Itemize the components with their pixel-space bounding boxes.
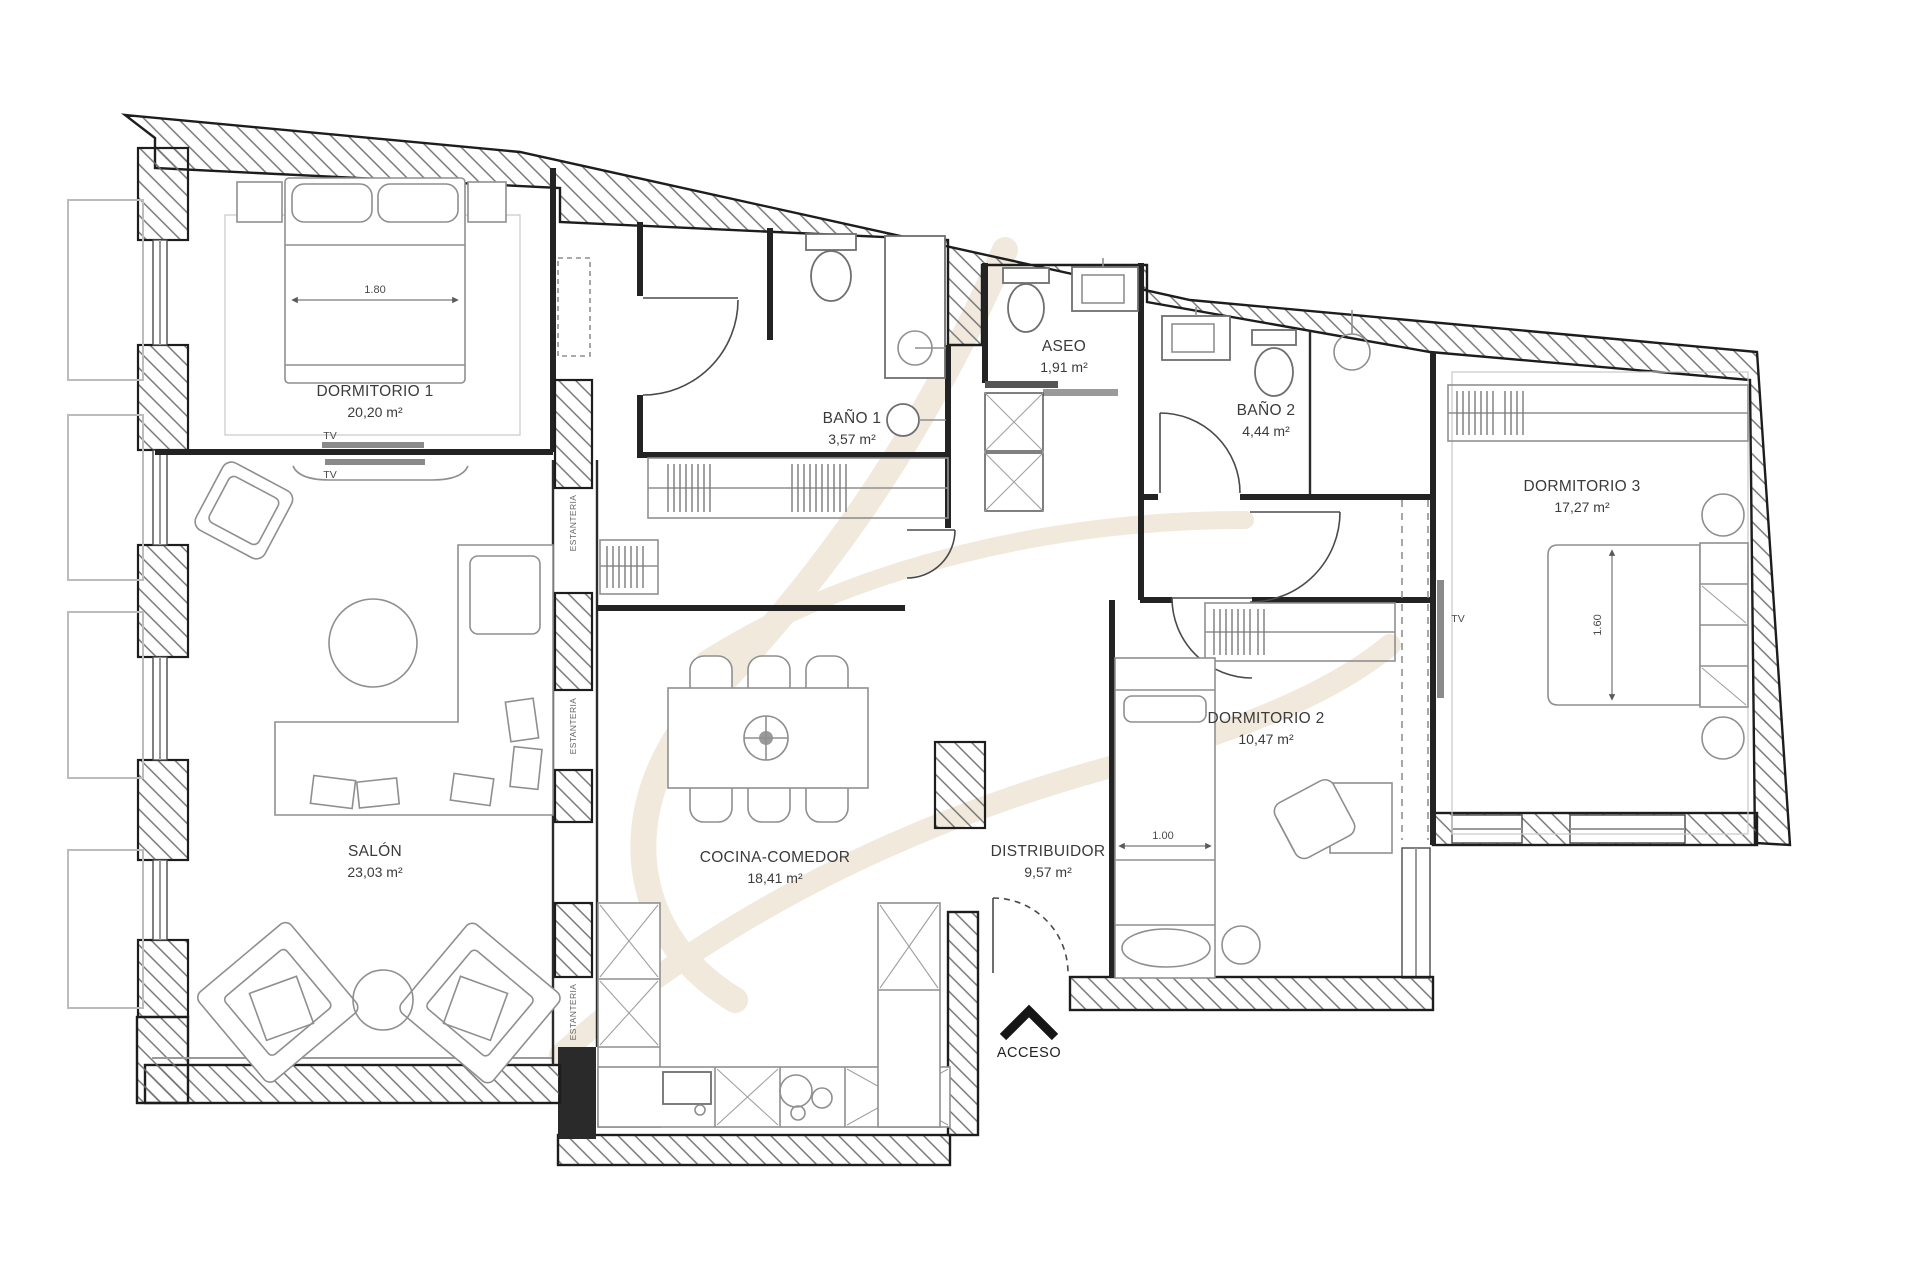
floor-plan-canvas: DORMITORIO 1 20,20 m² SALÓN 23,03 m² BAÑ…: [0, 0, 1920, 1280]
room-area-aseo: 1,91 m²: [1040, 359, 1088, 375]
kitchen-sink: [663, 1072, 711, 1104]
shelf-label-2: ESTANTERIA: [568, 698, 578, 755]
wall-pier-left-2: [138, 345, 188, 450]
tv-label-1: TV: [323, 430, 336, 442]
room-label-bano-1: BAÑO 1: [823, 410, 882, 427]
wall-corner-block: [137, 1017, 188, 1103]
tv-unit-dorm1: [322, 442, 424, 448]
dim-bed1: 1.80: [364, 284, 385, 296]
room-label-bano-2: BAÑO 2: [1237, 402, 1296, 419]
entrance-label: ACCESO: [997, 1045, 1061, 1061]
floor-plan-page: DORMITORIO 1 20,20 m² SALÓN 23,03 m² BAÑ…: [0, 0, 1920, 1280]
wall-pier-entrance: [948, 912, 978, 1135]
wall-connector: [558, 1047, 596, 1139]
room-area-cocina: 18,41 m²: [747, 870, 803, 886]
room-label-aseo: ASEO: [1042, 338, 1086, 355]
room-area-dormitorio-2: 10,47 m²: [1238, 731, 1294, 747]
sliding-door-leaf-2: [1043, 389, 1118, 396]
nightstand: [237, 182, 282, 222]
room-area-salon: 23,03 m²: [347, 864, 403, 880]
hanging-clothes-icon: [607, 546, 643, 588]
room-area-dormitorio-3: 17,27 m²: [1554, 499, 1610, 515]
pier-strip-4: [555, 903, 592, 977]
room-label-dormitorio-3: DORMITORIO 3: [1524, 478, 1641, 495]
nightstand: [468, 182, 506, 222]
tv-label-3: TV: [1451, 613, 1464, 625]
sink-icon: [887, 404, 919, 436]
tv-unit-dorm3: [1437, 580, 1444, 698]
toilet-tank: [1003, 268, 1049, 283]
pier-distribuidor: [935, 742, 985, 828]
room-label-dormitorio-2: DORMITORIO 2: [1208, 710, 1325, 727]
tv-label-2: TV: [323, 469, 336, 481]
pier-strip-3: [555, 770, 592, 822]
toilet-tank: [1252, 330, 1296, 345]
shower-tray: [885, 236, 945, 378]
pier-strip-1: [555, 380, 592, 488]
wall-band-dorm2-bottom: [1070, 977, 1433, 1010]
double-bed: [1548, 545, 1700, 705]
wall-pier-left-3: [138, 545, 188, 657]
room-area-bano-1: 3,57 m²: [828, 431, 876, 447]
room-area-dormitorio-1: 20,20 m²: [347, 404, 403, 420]
double-bed: [285, 178, 465, 383]
dim-bed3: 1.60: [1592, 614, 1604, 635]
wall-pier-left-5: [138, 940, 188, 1017]
room-label-cocina: COCINA-COMEDOR: [700, 849, 851, 866]
toilet-tank: [806, 234, 856, 250]
room-area-distribuidor: 9,57 m²: [1024, 864, 1072, 880]
room-label-dormitorio-1: DORMITORIO 1: [317, 383, 434, 400]
toilet-bowl: [1008, 284, 1044, 332]
wall-pier-left-1: [138, 148, 188, 240]
toilet-bowl: [1255, 348, 1293, 396]
shelf-label-3: ESTANTERIA: [568, 984, 578, 1041]
wall-band-cocina-bottom: [558, 1135, 950, 1165]
wall-pier-left-4: [138, 760, 188, 860]
shelf-label-1: ESTANTERIA: [568, 495, 578, 552]
tv-unit-salon: [325, 459, 425, 465]
single-bed: [1115, 658, 1215, 978]
room-label-distribuidor: DISTRIBUIDOR: [991, 843, 1106, 860]
toilet-bowl: [811, 251, 851, 301]
room-area-bano-2: 4,44 m²: [1242, 423, 1290, 439]
room-label-salon: SALÓN: [348, 843, 402, 860]
dim-bed2: 1.00: [1152, 830, 1173, 842]
pier-strip-2: [555, 593, 592, 690]
sliding-door-leaf-1: [985, 381, 1058, 388]
